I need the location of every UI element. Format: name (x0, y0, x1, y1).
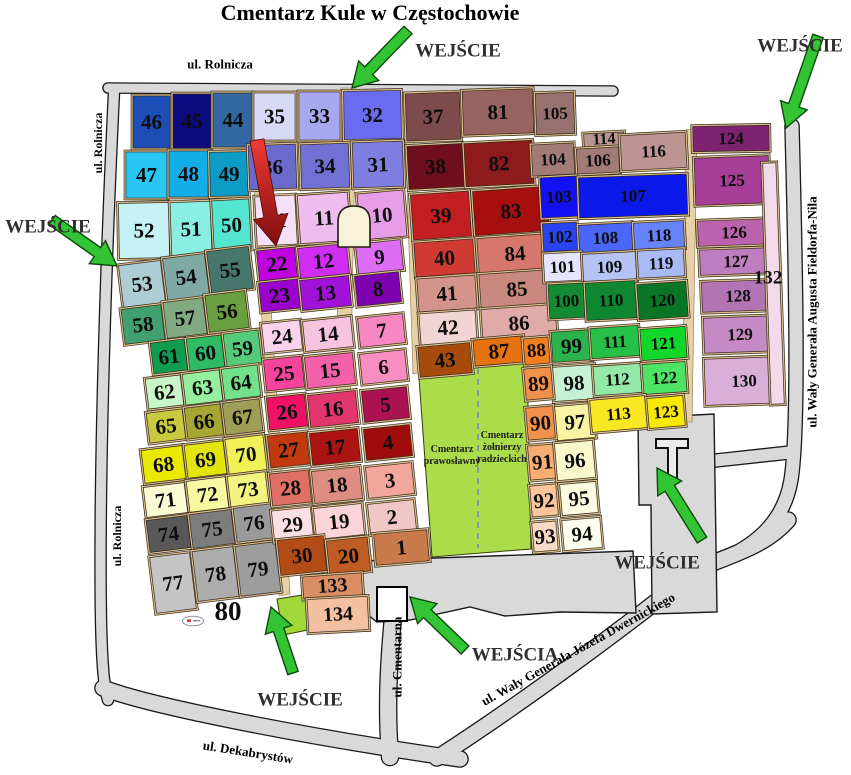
section-28-label: 28 (279, 475, 302, 501)
section-12-label: 12 (312, 248, 335, 274)
section-43: 43 (417, 342, 474, 379)
section-63-label: 63 (191, 374, 215, 400)
section-99-label: 99 (560, 333, 583, 358)
section-66-label: 66 (192, 408, 216, 434)
section-128-label: 128 (725, 286, 751, 306)
section-46-label: 46 (141, 110, 162, 134)
section-44: 44 (212, 92, 254, 148)
section-52: 52 (118, 202, 171, 260)
section-88: 88 (522, 336, 551, 366)
section-116-label: 116 (641, 141, 667, 161)
section-6: 6 (358, 349, 408, 386)
section-1-label: 1 (395, 535, 408, 560)
section-101-label: 101 (549, 257, 575, 277)
section-66: 66 (183, 403, 225, 440)
section-67: 67 (221, 398, 264, 436)
section-95: 95 (559, 480, 600, 516)
section-55: 55 (205, 245, 254, 294)
street-rolnicza-left-upper: ul. Rolnicza (91, 113, 105, 174)
section-22: 22 (255, 246, 298, 282)
section-32-label: 32 (362, 103, 383, 127)
section-31: 31 (351, 140, 405, 189)
section-81-label: 81 (487, 100, 509, 125)
section-67-label: 67 (231, 404, 255, 430)
section-84-label: 84 (504, 241, 527, 266)
street-fieldorfa-nila: ul. Wały Generała Augusta Fieldorfa-Nila (805, 196, 820, 428)
section-61: 61 (149, 338, 189, 375)
section-78-label: 78 (204, 561, 228, 587)
section-121-label: 121 (650, 333, 677, 354)
section-68: 68 (140, 445, 187, 485)
section-107-label: 107 (620, 186, 647, 206)
section-30-label: 30 (290, 542, 313, 568)
section-76-label: 76 (242, 510, 266, 536)
section-110-label: 110 (598, 290, 624, 310)
section-64-label: 64 (229, 369, 253, 395)
section-20-label: 20 (337, 543, 360, 569)
section-92: 92 (529, 483, 560, 518)
label-section-132: 132 (754, 268, 783, 289)
section-37: 37 (404, 91, 462, 142)
section-25-label: 25 (272, 360, 295, 386)
section-43-label: 43 (433, 347, 456, 373)
section-98-label: 98 (563, 370, 586, 395)
section-22-label: 22 (265, 251, 288, 277)
section-113: 113 (589, 395, 649, 434)
section-116: 116 (619, 131, 688, 171)
section-35-label: 35 (264, 105, 285, 129)
section-54-label: 54 (174, 264, 198, 290)
section-28: 28 (268, 469, 312, 507)
section-50: 50 (211, 198, 253, 252)
street-rolnicza-left-lower: ul. Rolnicza (110, 506, 124, 567)
section-72-label: 72 (196, 481, 220, 507)
section-19-label: 19 (327, 508, 350, 534)
section-16: 16 (306, 389, 359, 428)
section-109: 109 (581, 251, 637, 284)
section-102: 102 (541, 221, 579, 253)
section-41: 41 (416, 274, 478, 313)
section-78: 78 (191, 546, 240, 603)
page-title: Cmentarz Kule w Częstochowie (221, 0, 520, 25)
entrance-top-right: WEJŚCIE (757, 35, 843, 57)
section-65: 65 (145, 408, 187, 444)
section-52-label: 52 (133, 218, 154, 242)
section-62-label: 62 (153, 379, 177, 405)
section-100-label: 100 (553, 291, 579, 311)
arrow-entrance-top (352, 26, 412, 88)
entrance-building (377, 587, 407, 621)
section-39: 39 (409, 190, 472, 241)
section-104-label: 104 (540, 149, 567, 169)
section-3: 3 (364, 462, 415, 500)
section-57-label: 57 (173, 305, 197, 331)
section-108: 108 (577, 222, 633, 255)
section-24-label: 24 (270, 323, 294, 349)
section-1: 1 (373, 529, 431, 567)
section-123-label: 123 (652, 401, 679, 422)
section-112-label: 112 (605, 369, 631, 390)
section-94-label: 94 (570, 521, 594, 547)
section-99: 99 (550, 329, 593, 364)
label-cmentarz-zolnierzy: Cmentarzżołnierzyradzieckich (477, 430, 527, 465)
road-rolnicza-left (101, 92, 114, 700)
section-62: 62 (144, 374, 185, 410)
section-76: 76 (232, 503, 276, 544)
section-55-label: 55 (218, 257, 242, 283)
section-90: 90 (525, 405, 557, 441)
street-rolnicza-top: ul. Rolnicza (187, 57, 253, 72)
section-75: 75 (188, 508, 236, 549)
section-77-label: 77 (161, 570, 185, 596)
section-103: 103 (539, 175, 579, 219)
section-30: 30 (276, 535, 328, 577)
section-10-label: 10 (370, 202, 393, 228)
section-90-label: 90 (529, 410, 552, 436)
street-cmentarna: ul. Cmentarna (390, 616, 405, 697)
section-97-label: 97 (563, 409, 586, 435)
section-53-label: 53 (130, 271, 154, 297)
section-45-label: 45 (182, 109, 203, 133)
section-69-label: 69 (194, 446, 218, 472)
section-56-label: 56 (215, 298, 239, 324)
section-94: 94 (561, 516, 604, 551)
section-111: 111 (589, 324, 641, 359)
section-14-label: 14 (316, 321, 340, 347)
section-101: 101 (542, 251, 583, 283)
section-17-label: 17 (323, 434, 346, 460)
section-46: 46 (132, 95, 171, 149)
section-92-label: 92 (532, 488, 555, 514)
section-71: 71 (142, 481, 189, 518)
section-70-label: 70 (234, 441, 258, 467)
section-108-label: 108 (592, 228, 618, 248)
entrance-bottom: WEJŚCIE (257, 689, 343, 711)
section-120: 120 (636, 280, 689, 320)
section-38: 38 (406, 143, 465, 191)
section-93-label: 93 (533, 524, 556, 550)
section-119-label: 119 (648, 253, 674, 273)
section-105: 105 (534, 91, 575, 135)
section-59: 59 (222, 329, 263, 368)
section-26-label: 26 (275, 399, 298, 425)
section-110: 110 (584, 280, 638, 322)
section-25: 25 (262, 355, 305, 392)
section-75-label: 75 (200, 516, 224, 542)
section-39-label: 39 (430, 203, 453, 228)
section-113-label: 113 (605, 403, 631, 424)
section-45: 45 (172, 93, 212, 149)
section-26: 26 (265, 393, 308, 431)
section-23: 23 (257, 278, 301, 313)
section-96-label: 96 (563, 448, 586, 474)
section-14: 14 (301, 315, 354, 352)
section-42-label: 42 (437, 315, 460, 340)
section-95-label: 95 (567, 486, 590, 512)
section-87-label: 87 (487, 338, 510, 364)
section-106-label: 106 (585, 150, 611, 170)
cemetery-map: 4645444748495251505354555857566160596263… (0, 0, 851, 775)
map-credit-stamp (183, 616, 204, 626)
section-109-label: 109 (596, 257, 622, 277)
section-50-label: 50 (220, 212, 242, 237)
section-86-label: 86 (508, 310, 531, 335)
section-13: 13 (298, 274, 352, 311)
section-47-label: 47 (136, 163, 157, 187)
section-96: 96 (553, 439, 596, 481)
section-24: 24 (260, 319, 303, 354)
section-63: 63 (181, 369, 224, 407)
section-134: 134 (306, 595, 370, 633)
entrance-top: WEJŚCIE (415, 40, 501, 62)
section-102-label: 102 (547, 227, 573, 247)
section-79-label: 79 (246, 556, 270, 582)
section-20: 20 (325, 536, 372, 576)
section-107: 107 (577, 173, 688, 219)
section-13-label: 13 (314, 280, 337, 306)
label-section-80: 80 (215, 596, 242, 626)
section-134-label: 134 (322, 603, 353, 627)
section-49-label: 49 (218, 162, 239, 186)
section-129-label: 129 (727, 325, 753, 345)
label-cmentarz-prawoslawny: Cmentarzprawosławny (424, 444, 481, 467)
section-27: 27 (266, 431, 310, 469)
section-17: 17 (308, 427, 361, 466)
section-87: 87 (472, 335, 526, 367)
section-123: 123 (646, 394, 687, 429)
section-23-label: 23 (268, 282, 291, 308)
section-126-label: 126 (721, 223, 747, 243)
section-38-label: 38 (424, 154, 446, 179)
section-60: 60 (185, 334, 226, 372)
section-51: 51 (169, 200, 213, 257)
section-51-label: 51 (180, 217, 202, 242)
section-124-label: 124 (718, 129, 744, 148)
section-18: 18 (310, 465, 363, 504)
section-70: 70 (224, 434, 268, 476)
chapel-icon (338, 206, 370, 247)
section-126: 126 (697, 218, 772, 248)
section-104: 104 (530, 142, 576, 177)
section-32: 32 (343, 89, 403, 140)
entrance-bottom-mid: WEJŚCIA (472, 644, 559, 666)
section-74-label: 74 (157, 521, 181, 547)
section-11-label: 11 (313, 205, 334, 230)
cemetery-map-page: 4645444748495251505354555857566160596263… (0, 0, 851, 775)
section-122: 122 (641, 360, 688, 395)
section-15: 15 (303, 351, 356, 389)
section-37-label: 37 (422, 104, 444, 129)
section-98: 98 (551, 364, 597, 403)
section-58: 58 (120, 304, 166, 346)
section-44-label: 44 (223, 108, 245, 132)
section-79: 79 (234, 541, 282, 598)
section-15-label: 15 (318, 357, 341, 383)
entrance-east: WEJŚCIE (614, 552, 700, 574)
section-61-label: 61 (157, 343, 181, 369)
section-33-label: 33 (309, 104, 330, 128)
section-82-label: 82 (488, 151, 510, 176)
section-59-label: 59 (231, 335, 255, 361)
section-49: 49 (209, 151, 250, 198)
section-118-label: 118 (646, 225, 672, 245)
section-106: 106 (575, 146, 620, 175)
section-133-label: 133 (317, 574, 348, 598)
section-31-label: 31 (367, 152, 389, 177)
section-91-label: 91 (531, 449, 554, 475)
section-89: 89 (523, 366, 555, 401)
section-35: 35 (253, 92, 296, 141)
section-5: 5 (360, 386, 410, 424)
section-125-label: 125 (719, 171, 745, 191)
street-dekabrystow: ul. Dekabrystów (202, 737, 295, 766)
section-77: 77 (149, 552, 198, 615)
section-40-label: 40 (433, 245, 456, 270)
section-105-label: 105 (542, 104, 568, 124)
section-8: 8 (353, 271, 402, 308)
section-83-label: 83 (500, 198, 523, 223)
section-121: 121 (639, 325, 688, 361)
section-82: 82 (463, 139, 535, 188)
section-127-label: 127 (723, 252, 750, 272)
section-88-label: 88 (526, 340, 547, 363)
section-16-label: 16 (321, 396, 344, 422)
section-53: 53 (117, 259, 166, 308)
section-29-label: 29 (281, 511, 304, 537)
section-73-label: 73 (236, 476, 260, 502)
section-18-label: 18 (325, 472, 348, 498)
section-34-label: 34 (314, 154, 336, 179)
entrance-left: WEJŚCIE (5, 216, 91, 238)
section-74: 74 (145, 515, 192, 554)
section-120-label: 120 (649, 290, 676, 311)
section-68-label: 68 (152, 451, 176, 477)
section-71-label: 71 (154, 487, 178, 513)
section-57: 57 (162, 297, 208, 340)
section-111-label: 111 (603, 332, 628, 353)
section-119: 119 (636, 248, 685, 279)
section-42: 42 (418, 309, 478, 346)
section-118: 118 (632, 220, 685, 252)
section-60-label: 60 (194, 340, 218, 366)
section-48-label: 48 (178, 162, 199, 186)
section-93: 93 (531, 520, 560, 553)
section-56: 56 (204, 290, 250, 334)
section-64: 64 (220, 364, 262, 401)
section-85-label: 85 (506, 276, 529, 301)
section-89-label: 89 (527, 371, 550, 397)
section-130-label: 130 (731, 371, 757, 391)
section-124: 124 (692, 124, 770, 152)
section-69: 69 (183, 440, 228, 480)
section-40: 40 (413, 238, 476, 278)
section-47: 47 (125, 151, 168, 199)
section-65-label: 65 (154, 413, 178, 439)
section-41-label: 41 (436, 281, 459, 306)
section-125: 125 (693, 155, 771, 207)
section-100: 100 (547, 282, 586, 320)
section-7: 7 (357, 313, 407, 349)
section-48: 48 (168, 150, 209, 198)
section-122-label: 122 (651, 368, 678, 389)
section-112: 112 (592, 362, 643, 396)
section-27-label: 27 (277, 437, 300, 463)
section-34: 34 (299, 142, 351, 190)
section-103-label: 103 (546, 187, 572, 207)
section-33: 33 (298, 91, 341, 141)
section-72: 72 (185, 476, 230, 514)
section-4: 4 (362, 424, 413, 462)
section-58-label: 58 (131, 311, 155, 337)
section-81: 81 (461, 88, 535, 136)
